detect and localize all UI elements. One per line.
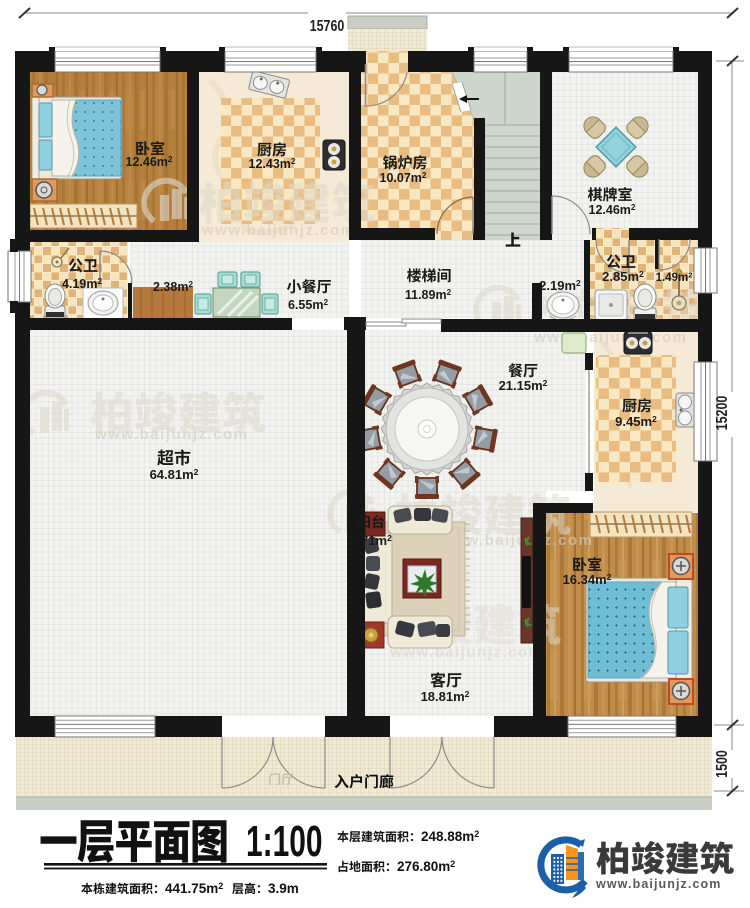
svg-text:12.46m2: 12.46m2 — [589, 203, 636, 217]
svg-text:www.baijunjz.com: www.baijunjz.com — [595, 877, 721, 891]
svg-text:64.81m2: 64.81m2 — [150, 467, 199, 482]
svg-text:10.07m2: 10.07m2 — [380, 171, 427, 185]
svg-text:12.46m2: 12.46m2 — [126, 155, 173, 169]
svg-text:12.43m2: 12.43m2 — [249, 157, 296, 171]
svg-text:3.71m2: 3.71m2 — [350, 533, 392, 548]
svg-text:441.75m2: 441.75m2 — [165, 881, 223, 896]
svg-text:1:100: 1:100 — [246, 816, 323, 865]
svg-text:18.81m2: 18.81m2 — [421, 689, 470, 704]
svg-text:www.baijunjz.com: www.baijunjz.com — [201, 222, 355, 239]
svg-text:276.80m2: 276.80m2 — [397, 859, 455, 874]
svg-text:2.38m2: 2.38m2 — [153, 280, 193, 294]
svg-text:15200: 15200 — [714, 396, 732, 431]
svg-text:2.85m2: 2.85m2 — [602, 269, 644, 284]
svg-text:21.15m2: 21.15m2 — [499, 378, 548, 393]
svg-text:6.55m2: 6.55m2 — [288, 298, 328, 312]
svg-text:1500: 1500 — [714, 750, 732, 778]
svg-text:1.49m2: 1.49m2 — [656, 270, 693, 284]
svg-text:2.19m2: 2.19m2 — [539, 278, 581, 293]
svg-text:3.9m: 3.9m — [268, 881, 299, 896]
svg-text:16.34m2: 16.34m2 — [563, 572, 612, 587]
svg-text:248.88m2: 248.88m2 — [421, 829, 479, 844]
svg-text:15760: 15760 — [310, 18, 345, 36]
svg-text:11.89m2: 11.89m2 — [405, 288, 452, 302]
svg-text:www.baijunjz.com: www.baijunjz.com — [94, 426, 248, 443]
svg-text:4.19m2: 4.19m2 — [62, 277, 102, 291]
svg-text:9.45m2: 9.45m2 — [615, 414, 657, 429]
